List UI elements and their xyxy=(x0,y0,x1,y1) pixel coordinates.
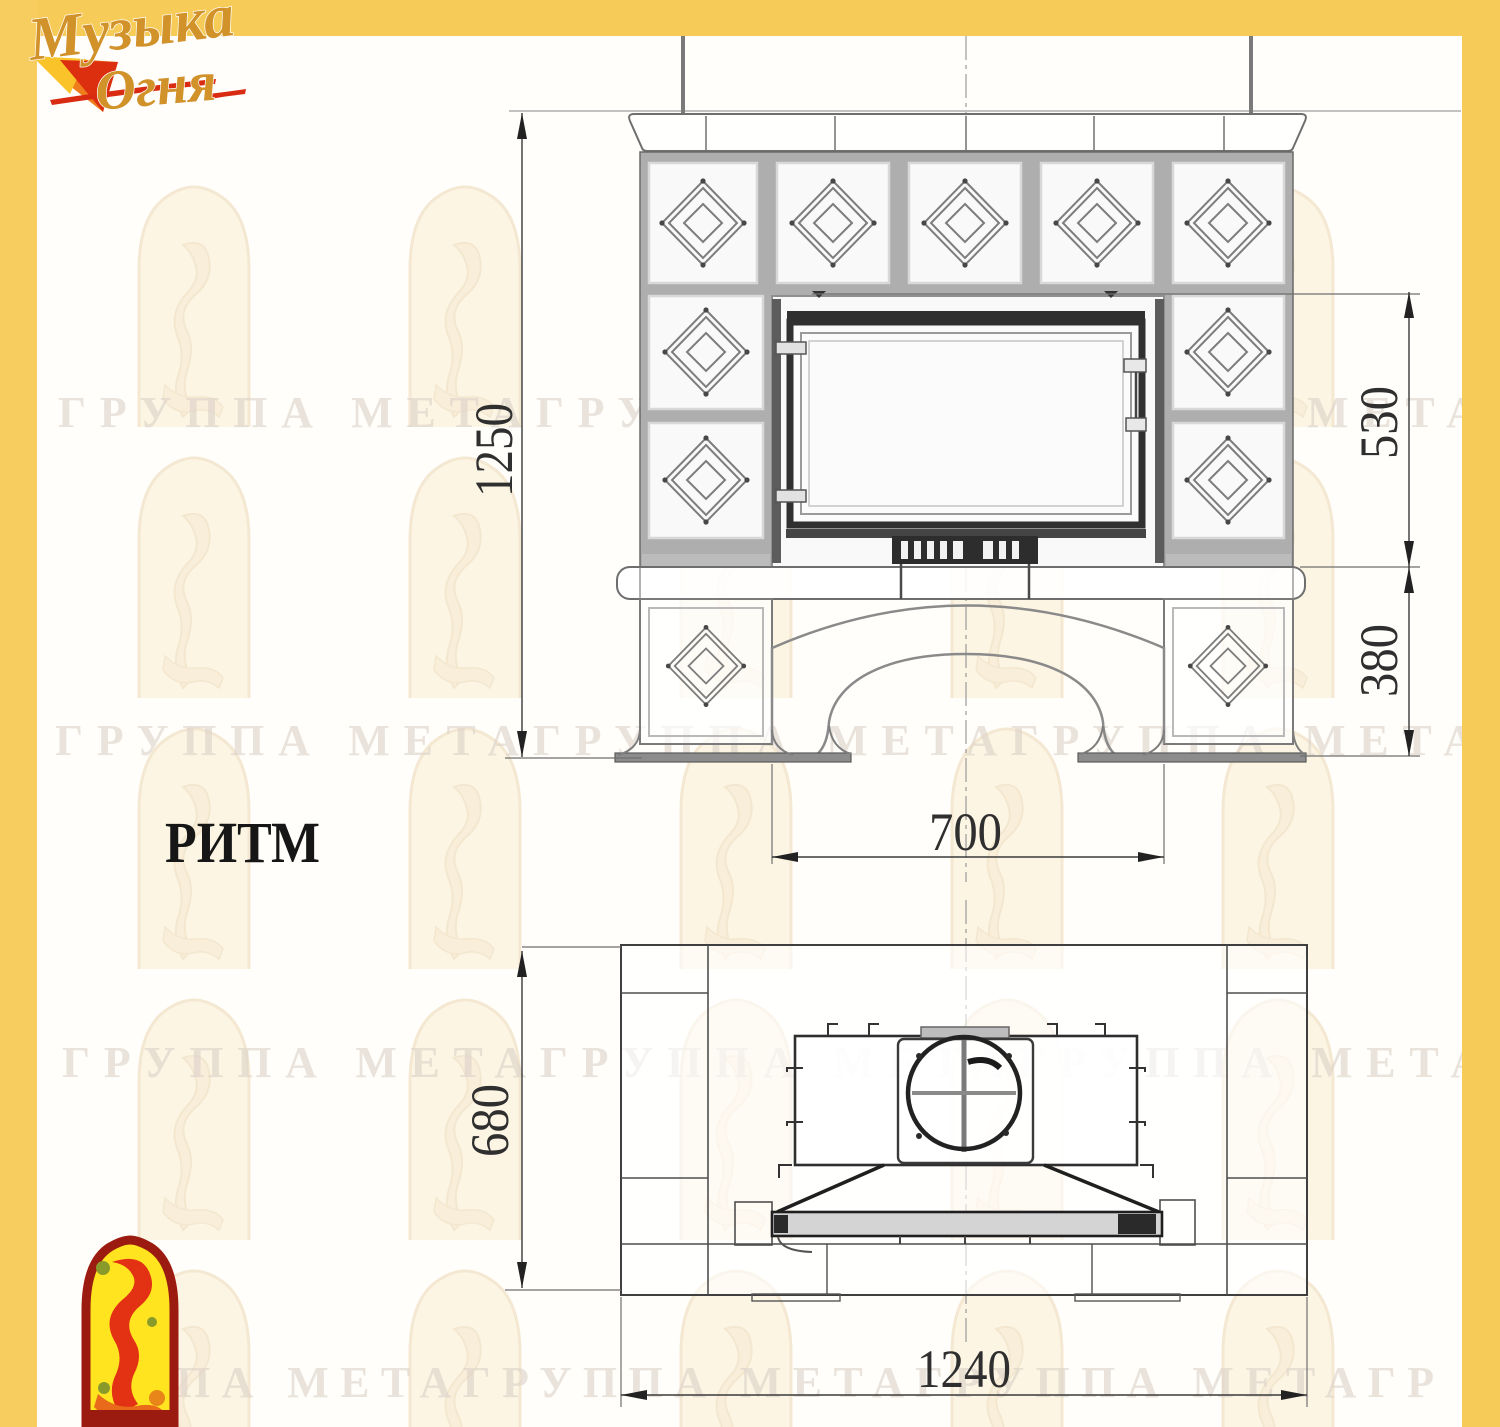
svg-text:680: 680 xyxy=(461,1084,521,1157)
svg-text:РИТМ: РИТМ xyxy=(165,810,320,875)
svg-text:700: 700 xyxy=(929,803,1002,863)
svg-text:1250: 1250 xyxy=(465,403,525,497)
svg-text:ПА МЕТАГРУППА МЕТАГРУППА МЕТАГ: ПА МЕТАГРУППА МЕТАГРУППА МЕТАГР xyxy=(176,1358,1434,1407)
svg-text:1240: 1240 xyxy=(917,1340,1011,1400)
svg-text:Огня: Огня xyxy=(93,51,219,123)
svg-text:530: 530 xyxy=(1350,386,1410,459)
svg-text:380: 380 xyxy=(1350,624,1410,697)
